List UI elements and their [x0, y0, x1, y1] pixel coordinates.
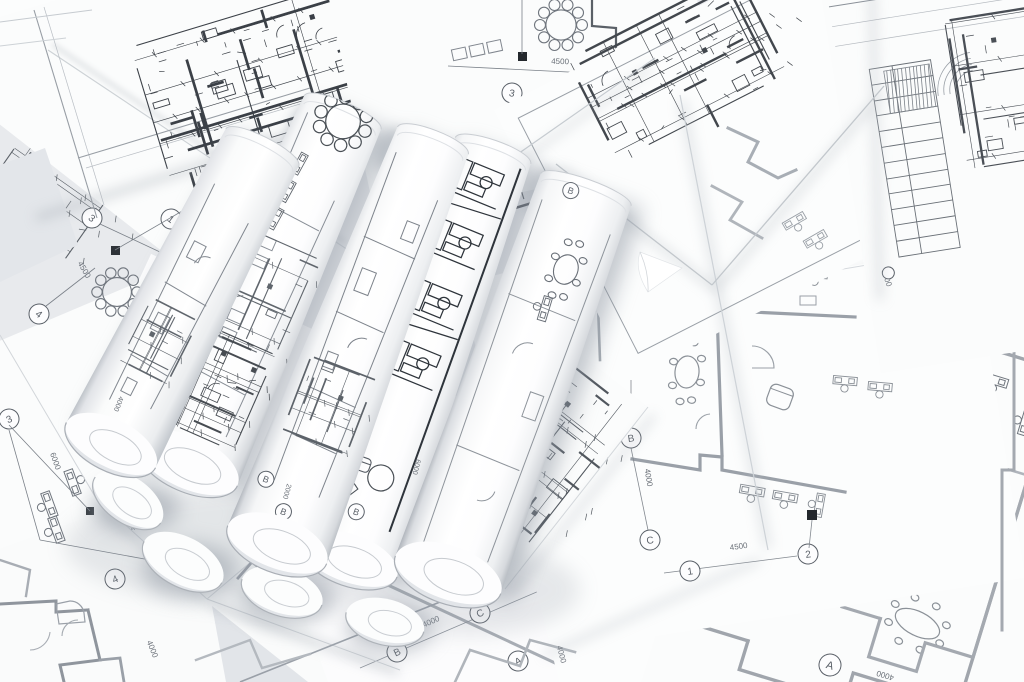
svg-text:4500: 4500	[551, 57, 570, 67]
